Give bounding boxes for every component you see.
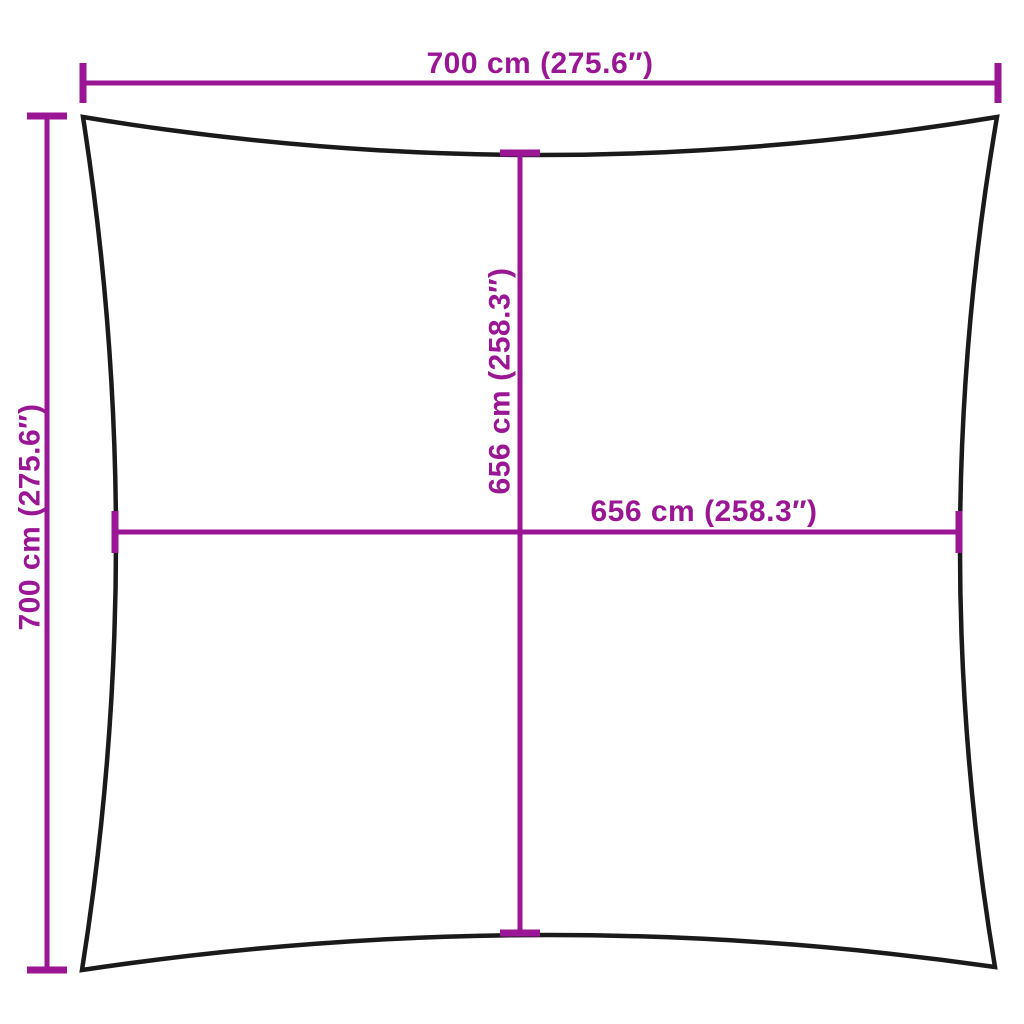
shade-sail-dimension-diagram: 700 cm (275.6″) 700 cm (275.6″) 656 cm (… (0, 0, 1024, 1024)
dimension-inner-vertical-label: 656 cm (258.3″) (484, 267, 517, 494)
sail-outline-shape (82, 117, 997, 970)
dimension-top-width: 700 cm (275.6″) (83, 47, 998, 103)
dimension-inner-horizontal-label: 656 cm (258.3″) (590, 495, 817, 528)
dimension-left-height: 700 cm (275.6″) (14, 116, 68, 970)
dimension-top-label: 700 cm (275.6″) (426, 47, 653, 80)
diagram-canvas: 700 cm (275.6″) 700 cm (275.6″) 656 cm (… (0, 0, 1024, 1024)
dimension-left-label: 700 cm (275.6″) (14, 403, 47, 630)
